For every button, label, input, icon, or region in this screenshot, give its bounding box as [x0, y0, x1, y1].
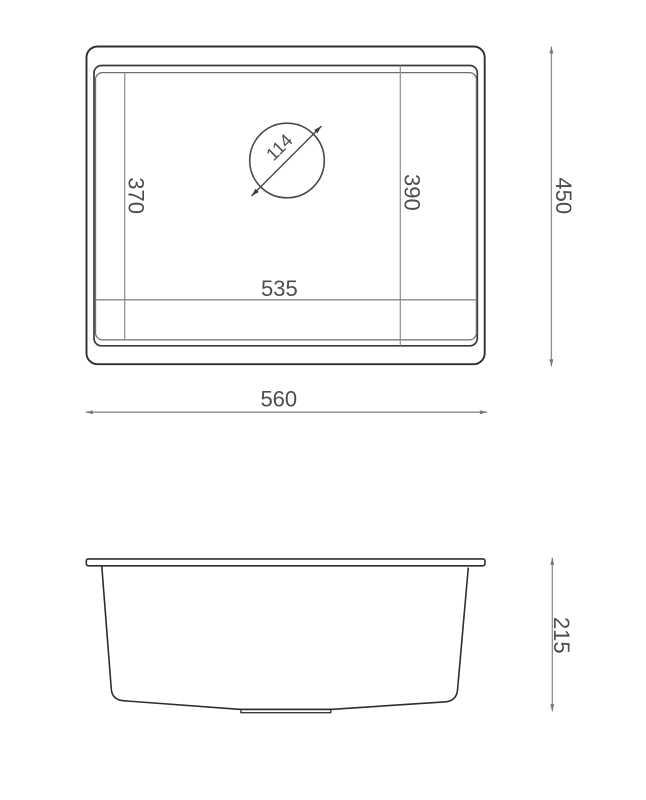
- svg-text:535: 535: [261, 276, 298, 301]
- svg-text:390: 390: [400, 174, 425, 211]
- svg-text:370: 370: [124, 177, 149, 214]
- svg-text:450: 450: [551, 177, 576, 214]
- svg-text:560: 560: [260, 387, 297, 412]
- svg-text:215: 215: [549, 617, 574, 654]
